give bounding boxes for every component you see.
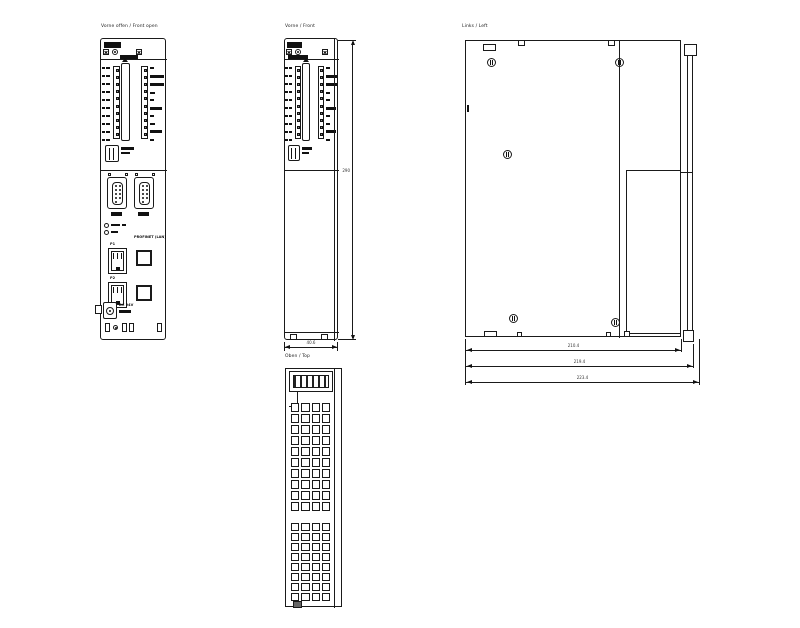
port2-label: P2: [110, 277, 115, 281]
label-smudge: [111, 212, 122, 216]
polarity-marker-icon: [303, 58, 309, 62]
dsub-connector-x2: [134, 177, 154, 209]
vent-slot: [301, 593, 309, 601]
drawing-canvas: Vorne offen / Front open Vorne / Front O…: [0, 0, 800, 628]
housing-screw-icon: [503, 150, 512, 159]
terminal-pin: [116, 76, 119, 79]
vent-slot: [322, 533, 330, 541]
vent-slot: [322, 458, 330, 467]
dsub-pin: [146, 189, 148, 191]
dsub-shell: [139, 182, 150, 205]
bottom-foot: [624, 331, 630, 337]
terminal-pin: [116, 97, 119, 100]
product-name-plate: [104, 42, 121, 48]
terminal-pin: [144, 119, 147, 122]
view-front-open: PROFINET (LAN) P1 P2 DC 24V: [100, 38, 166, 340]
arrowhead: [467, 364, 472, 368]
vent-slot: [291, 458, 299, 467]
bottom-tab: [293, 601, 302, 608]
dsub-pin: [115, 193, 117, 195]
arrowhead: [351, 40, 355, 45]
dsub-screw-icon: [125, 173, 128, 176]
view-front: [284, 38, 338, 340]
arrowhead: [351, 335, 355, 340]
front-connector: [302, 63, 310, 141]
extension-line: [693, 344, 694, 368]
dsub-pin: [146, 193, 148, 195]
dsub-pin: [115, 201, 117, 203]
rail-hook-strip: [687, 55, 693, 337]
terminal-pin: [320, 69, 323, 72]
dim-height-label: 290: [339, 168, 350, 173]
vent-slot: [322, 573, 330, 581]
vent-slot: [312, 469, 320, 478]
vent-slot: [291, 553, 299, 561]
bottom-foot: [484, 331, 497, 337]
terminal-pin: [116, 69, 119, 72]
dsub-pin: [146, 185, 148, 187]
line: [285, 170, 339, 171]
vent-slot: [301, 436, 309, 445]
dsub-connector-x1: [107, 177, 127, 209]
dsub-pin: [119, 197, 121, 199]
card-slot-ribs: [109, 148, 117, 160]
dim-depth3-label: 223.4: [466, 375, 699, 380]
line: [681, 172, 693, 173]
vent-slot: [301, 414, 309, 423]
dsub-pin: [142, 193, 144, 195]
vent-slot: [291, 425, 299, 434]
terminal-labels-right: [150, 67, 165, 141]
terminal-pin: [116, 133, 119, 136]
vent-slot: [322, 447, 330, 456]
vent-slot: [312, 502, 320, 511]
vent-slot: [322, 523, 330, 531]
mode-selector-icon: [112, 49, 118, 55]
bottom-screw-icon: [113, 325, 118, 330]
bottom-foot: [606, 332, 611, 337]
power-connector: [103, 302, 117, 319]
terminal-pin: [116, 119, 119, 122]
dsub-pin: [119, 185, 121, 187]
terminal-pin: [320, 133, 323, 136]
vent-slot: [291, 403, 299, 412]
dsub-pin: [146, 197, 148, 199]
view-top: [285, 368, 342, 607]
terminal-pin: [297, 97, 300, 100]
dsub-screw-icon: [135, 173, 138, 176]
label-smudge: [111, 224, 120, 226]
extension-line: [681, 339, 682, 352]
vent-slot: [301, 425, 309, 434]
housing-screw-icon: [509, 314, 518, 323]
rj45-opening: [111, 251, 124, 271]
line: [285, 59, 339, 60]
terminal-pin: [116, 126, 119, 129]
rj45-port-p1: [108, 248, 127, 274]
label-smudge: [121, 152, 130, 154]
lan-port-opening: [136, 285, 152, 301]
terminal-pin: [320, 112, 323, 115]
vent-slot: [312, 436, 320, 445]
dimension-line-depth1: [466, 350, 681, 351]
vent-slot: [301, 403, 309, 412]
vent-slot: [312, 533, 320, 541]
vent-slot: [322, 593, 330, 601]
title-top: Oben / Top: [285, 354, 310, 359]
vent-slot: [301, 573, 309, 581]
led-indicator: [104, 230, 109, 235]
title-front: Vorne / Front: [285, 24, 315, 29]
terminal-pin: [320, 76, 323, 79]
polarity-marker-icon: [122, 58, 128, 62]
vent-slot: [312, 425, 320, 434]
power-label: DC 24V: [119, 304, 133, 308]
vent-grid-upper: [291, 403, 330, 511]
label-smudge: [119, 310, 131, 313]
vent-slot: [312, 447, 320, 456]
vent-slot: [291, 543, 299, 551]
dim-depth2-label: 219.4: [466, 359, 693, 364]
vent-slot: [322, 425, 330, 434]
vent-slot: [301, 523, 309, 531]
side-marking: [467, 105, 469, 112]
vent-slot: [291, 414, 299, 423]
terminal-pin: [297, 112, 300, 115]
top-edge-notch: [608, 41, 615, 46]
vent-slot: [301, 480, 309, 489]
terminal-pin: [116, 83, 119, 86]
terminal-pin: [144, 112, 147, 115]
vent-slot: [301, 533, 309, 541]
label-smudge: [302, 147, 312, 150]
housing-screw-icon: [487, 58, 496, 67]
card-slot-ribs: [291, 148, 299, 159]
vent-slot: [291, 563, 299, 571]
vent-slot: [312, 458, 320, 467]
vent-slot: [312, 543, 320, 551]
dsub-pin: [115, 185, 117, 187]
vent-slot: [301, 458, 309, 467]
label-smudge: [302, 152, 309, 154]
arrowhead: [467, 348, 472, 352]
vent-slot: [291, 447, 299, 456]
terminal-strip-left: [113, 66, 120, 139]
terminal-pin: [116, 105, 119, 108]
terminal-pin: [144, 83, 147, 86]
terminal-pin: [144, 126, 147, 129]
terminal-pin: [320, 83, 323, 86]
dim-width-label: 40.6: [284, 340, 338, 345]
vent-slot: [312, 480, 320, 489]
arrowhead: [467, 380, 472, 384]
terminal-pin: [297, 90, 300, 93]
arrowhead: [693, 380, 698, 384]
vent-slot: [322, 543, 330, 551]
vent-slot: [291, 502, 299, 511]
vent-slot: [301, 469, 309, 478]
dsub-pin: [142, 189, 144, 191]
vent-slot: [312, 403, 320, 412]
top-edge-notch: [518, 41, 525, 46]
vent-slot: [312, 523, 320, 531]
vent-slot: [322, 553, 330, 561]
terminal-pin: [320, 105, 323, 108]
vent-slot: [291, 491, 299, 500]
lan-group-label: PROFINET (LAN): [134, 236, 166, 240]
dsub-shell: [112, 182, 123, 205]
vent-slot: [312, 491, 320, 500]
bottom-foot: [517, 332, 522, 337]
vent-slot: [301, 563, 309, 571]
rail-hook-bottom: [683, 330, 694, 342]
terminal-pin: [144, 76, 147, 79]
bottom-slot: [157, 323, 162, 332]
label-smudge: [121, 147, 134, 150]
connector-pins: [293, 375, 329, 388]
bottom-slot: [105, 323, 110, 332]
view-left: [465, 40, 681, 337]
dimension-line-width: [284, 347, 338, 348]
backplane-connector: [289, 371, 333, 392]
product-name-plate: [287, 42, 302, 48]
vent-slot: [322, 414, 330, 423]
dimension-line-height: [352, 42, 353, 338]
vent-slot: [291, 480, 299, 489]
terminal-pin: [320, 126, 323, 129]
terminal-strip-left: [295, 66, 301, 139]
terminal-pin: [297, 126, 300, 129]
dsub-pin: [142, 185, 144, 187]
terminal-strip-right: [318, 66, 324, 139]
vent-slot: [312, 583, 320, 591]
terminal-pin: [320, 90, 323, 93]
extension-line: [699, 339, 700, 385]
memory-card-slot: [288, 145, 300, 161]
mounting-hook: [95, 305, 102, 314]
vent-slot: [291, 593, 299, 601]
vent-slot: [322, 403, 330, 412]
dim-depth1-label: 210.4: [466, 343, 681, 348]
vent-slot: [322, 583, 330, 591]
vent-slot: [312, 563, 320, 571]
vent-slot: [322, 480, 330, 489]
front-connector: [121, 63, 130, 141]
title-front-open: Vorne offen / Front open: [101, 24, 158, 29]
lan-port-opening: [136, 250, 152, 266]
terminal-labels-left: [102, 67, 112, 141]
terminal-pin: [116, 112, 119, 115]
vent-slot: [291, 469, 299, 478]
terminal-pin: [144, 69, 147, 72]
memory-card-slot: [105, 145, 119, 162]
terminal-pin: [297, 133, 300, 136]
terminal-pin: [144, 133, 147, 136]
terminal-pin: [144, 105, 147, 108]
vent-slot: [301, 447, 309, 456]
rj45-pins: [113, 253, 123, 259]
terminal-pin: [297, 119, 300, 122]
power-plug-icon: [106, 307, 114, 315]
line: [101, 59, 167, 60]
label-smudge: [138, 212, 149, 216]
vent-slot: [291, 523, 299, 531]
top-notch: [483, 44, 496, 51]
dsub-screw-icon: [108, 173, 111, 176]
vent-slot: [312, 593, 320, 601]
bottom-slot: [122, 323, 127, 332]
vent-slot: [312, 553, 320, 561]
terminal-pin: [297, 83, 300, 86]
vent-slot: [301, 502, 309, 511]
vent-slot: [301, 583, 309, 591]
rear-recess: [626, 170, 681, 334]
vent-slot: [291, 583, 299, 591]
vent-slot: [291, 533, 299, 541]
port1-label: P1: [110, 243, 115, 247]
dsub-pin: [119, 189, 121, 191]
dsub-pin: [142, 201, 144, 203]
terminal-labels-left: [285, 67, 294, 141]
side-profile-line: [334, 39, 335, 341]
dsub-pin: [115, 189, 117, 191]
dimension-line-depth2: [466, 366, 693, 367]
terminal-pin: [116, 90, 119, 93]
bottom-slot: [129, 323, 134, 332]
terminal-pin: [320, 119, 323, 122]
vent-slot: [322, 469, 330, 478]
arrowhead: [675, 348, 680, 352]
terminal-labels-right: [326, 67, 338, 141]
vent-slot: [301, 491, 309, 500]
vent-slot: [301, 553, 309, 561]
line: [285, 332, 339, 333]
fastener-screw-icon: [322, 49, 328, 55]
arrowhead: [687, 364, 692, 368]
fastener-screw-icon: [103, 49, 109, 55]
vent-slot: [312, 414, 320, 423]
arrowhead: [285, 345, 290, 349]
vent-grid-lower: [291, 523, 330, 601]
vent-slot: [322, 563, 330, 571]
terminal-pin: [297, 105, 300, 108]
dsub-pin: [115, 197, 117, 199]
vent-slot: [301, 543, 309, 551]
terminal-pin: [297, 69, 300, 72]
terminal-pin: [144, 90, 147, 93]
vent-slot: [291, 573, 299, 581]
rj45-pins: [113, 287, 123, 293]
housing-divider-line: [619, 41, 620, 338]
label-smudge: [111, 231, 118, 233]
led-indicator: [104, 223, 109, 228]
dimension-line-depth3: [466, 382, 699, 383]
side-wall-line: [334, 369, 335, 608]
rj45-latch: [116, 267, 120, 270]
dsub-pin: [119, 193, 121, 195]
dsub-screw-icon: [152, 173, 155, 176]
terminal-pin: [320, 97, 323, 100]
terminal-pin: [297, 76, 300, 79]
vent-slot: [312, 573, 320, 581]
vent-slot: [291, 436, 299, 445]
title-left: Links / Left: [462, 24, 488, 29]
label-smudge: [122, 224, 126, 226]
vent-slot: [322, 491, 330, 500]
terminal-pin: [144, 97, 147, 100]
terminal-strip-right: [141, 66, 148, 139]
line: [101, 170, 167, 171]
arrowhead: [332, 345, 337, 349]
vent-slot: [322, 436, 330, 445]
dsub-pin: [142, 197, 144, 199]
vent-slot: [322, 502, 330, 511]
